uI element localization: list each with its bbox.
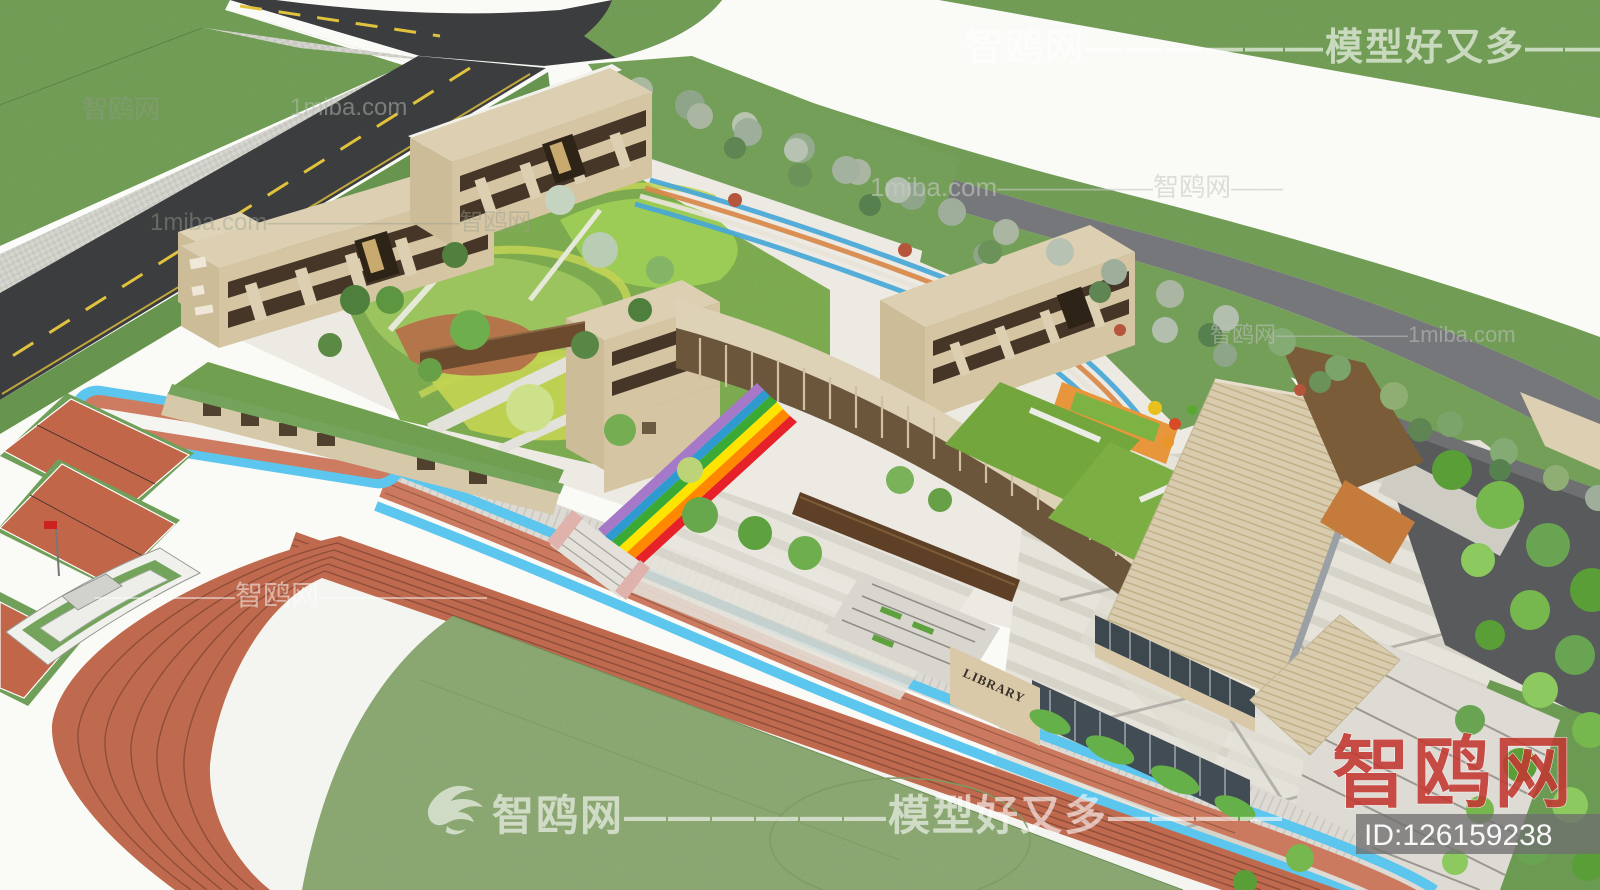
svg-text:智鸥网: 智鸥网: [82, 94, 160, 124]
svg-text:智鸥网——————模型好又多————: 智鸥网——————模型好又多————: [492, 792, 1284, 839]
svg-text:ID:126159238: ID:126159238: [1364, 819, 1553, 852]
svg-text:智鸥网: 智鸥网: [1332, 730, 1575, 817]
svg-text:1miba.com——————智鸥网——: 1miba.com——————智鸥网——: [870, 172, 1283, 202]
svg-text:智鸥网——————1miba.com: 智鸥网——————1miba.com: [1210, 322, 1516, 347]
svg-text:1miba.com————————智鸥网: 1miba.com————————智鸥网: [150, 209, 531, 236]
svg-text:智鸥网——————模型好又多———: 智鸥网——————模型好又多———: [965, 27, 1600, 69]
svg-text:1miba.com: 1miba.com: [290, 94, 407, 121]
svg-text:—————智鸥网——————: —————智鸥网——————: [95, 580, 487, 611]
